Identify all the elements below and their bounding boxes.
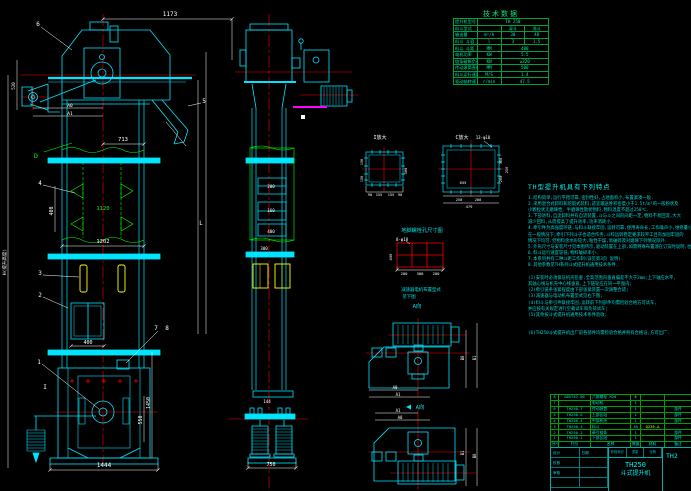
tech-unit: l [477,38,501,45]
sv-dim-300: 300 [260,246,268,251]
note-line: (6)TH250斗式提升机出厂前各部件均需检验合格并附有合格证,方可出厂. [528,331,691,337]
tech-unit: r/min [477,78,501,85]
flange-detail-I [364,150,405,187]
grid-d200a: 200 [401,271,409,276]
tech-label: 料斗运行速度 [454,71,478,78]
grid-d450: 450 [388,253,393,261]
sv-dim-750: 750 [266,462,275,468]
pv1-a1: A1 [396,392,401,397]
tech-label: 料斗型式 [454,25,478,32]
tech-value: 1.5 [525,38,549,45]
bill-of-materials: 8GB5782-86六角螺栓 M204 7电动机1 6TH250.7传动装置1部… [550,394,691,448]
fl2-d250c: 250 [505,167,509,174]
sv-dim-200: 200 [267,184,275,189]
tech-value: 3 [501,38,525,45]
sig-label: 校核 [551,458,580,468]
sv-dim-144: 144 [263,399,271,404]
grid-d200b: 200 [433,271,441,276]
weight-label: 重量 [627,448,645,457]
fl1-d90b: 90 [398,193,402,197]
pv1-a0: A0 [393,385,398,390]
bucket-side [253,264,290,288]
tech-value: 480 [501,45,549,52]
fl2-d200b: 200 [499,176,503,183]
dim-713: 713 [118,137,128,143]
dim-marker [301,115,305,119]
a-direction-arrow [406,405,411,410]
a-direction-marker-2: A向 [416,403,425,411]
fl1-d150a: 150 [360,159,364,165]
pv1-b1: B1 [472,355,477,360]
fl1-d155a: 155 [376,193,383,197]
dim-H: H(提升高度) [1,249,8,275]
dim-L: L [199,220,203,227]
detail-caption: 地脚螺栓孔尺寸图 [401,226,443,234]
a-direction-marker-1: A向 [413,302,422,310]
note-line: 5.外形尺寸与安装尺寸见本图所示,驱动装置在上部,如需特殊布置须在订货时说明,也… [528,245,691,251]
part-label-7: 7 [154,325,158,332]
sig-cell [580,458,609,468]
part-label-2: 2 [38,292,42,299]
title-block-center: 阶段标记 重量 比例 TH250 斗式提升机 [609,448,663,491]
tech-value: 浅斗 [525,25,549,32]
plan-view-top [369,323,459,388]
tech-value: 500 [501,65,549,72]
tech-value: 5.5 [501,51,549,58]
detail-I-label: I放大 [373,134,386,141]
sig-cell [551,478,580,488]
tech-unit: M/S [477,71,501,78]
sig-cell [580,468,609,478]
dim-1444: 1444 [97,462,112,469]
pv2-a1: A1 [396,408,401,413]
part-label-8: 8 [165,325,169,332]
notes-title: TH型提升机具有下列特点 [528,182,691,191]
tech-label: 传动滚筒直径 [454,65,478,72]
tech-label: 料斗 斗容 [454,38,478,45]
tech-unit: MM [477,45,501,52]
dim-550: 550 [138,415,144,424]
title-block: 设计 日期 校核 审核 阶段标记 重量 比例 TH250 斗式提升机 TH2 [550,447,691,491]
anchor-bolt-grid [397,243,443,267]
tech-value: ≥320 [501,58,549,65]
part-label-6: 6 [36,21,40,28]
note-line: (5)其余按斗式提升机通用技术条件验收; [528,313,691,319]
section-mark-I: I [43,384,47,391]
title-block-signatures: 设计 日期 校核 审核 [551,448,609,491]
dim-1173: 1173 [163,11,178,18]
grid-d300: 300 [417,271,425,276]
tech-value: 30 [501,32,525,39]
tech-unit: KN [477,58,501,65]
fl2-d655: 655 [460,180,467,185]
fl1-d300: 300 [403,167,408,175]
tech-value: TH 250 [477,19,548,26]
dim-1450: 1450 [146,397,152,409]
side-view [240,24,352,463]
pv2-a0: A0 [398,415,403,420]
dim-A1: A1 [67,111,73,117]
cad-viewport: 1173 713 400 1202 400 1444 1450 550 L H(… [0,0,691,491]
fl1-d90a: 90 [368,193,372,197]
tech-unit: KW [477,51,501,58]
fl2-d300: 300 [499,158,503,165]
title-block-strip: 阶段标记 重量 比例 [609,448,662,458]
sig-label: 审核 [551,468,580,478]
tech-label: 电机功率 [454,51,478,58]
tech-label: 驱动轴转速 [454,78,478,85]
layout-note-2: 见下图 [402,294,416,300]
drawing-title: 斗式提升机 [609,470,662,478]
dim-400-pitch: 400 [49,206,55,215]
dim-A0: A0 [67,103,73,109]
note-line: 4.牵引件为高强度环链,与料斗联接牢固,运转可靠,使用寿命长,工作噪声小,维修量… [528,226,691,232]
tech-unit: MM [477,65,501,72]
bucket-front [80,265,125,292]
drawing-model: TH250 [609,461,662,470]
tech-label: 输送量 [454,32,478,39]
part-label-5: 5 [202,98,206,105]
tech-value: 深斗 [501,25,525,32]
drawing-number: TH2 [663,448,691,491]
fl2-d479: 479 [466,204,474,209]
sv-dim-160: 160 [267,208,275,213]
detail-C-label: C放大 [455,134,468,141]
stage-label: 阶段标记 [609,448,627,457]
section-mark-D: D [34,152,38,160]
tech-label: 料斗 斗距 [454,45,478,52]
part-label-3: 3 [38,270,42,277]
fl1-d150b: 150 [360,176,364,182]
tech-label: 提升机型号 [454,19,478,26]
tech-unit: m³/h [477,32,501,39]
pv2-b0: B0 [472,453,477,458]
chute-edge [166,122,186,146]
dim-1202: 1202 [96,239,109,245]
detail-C-bolt-callout: 13-φ18 [476,135,491,140]
fl2-d250a: 250 [456,198,463,202]
tech-value: 47.5 [501,78,549,85]
motor-underline [293,107,327,119]
tech-table-title: 技术数据 [453,9,549,18]
fl2-d200a: 200 [475,198,482,202]
note-line: 8.其他参数见TH系列斗式提升机通用技术条件. [528,263,691,269]
tech-label: 链条破断负荷 [454,58,478,65]
pv2-b1: B1 [460,450,465,455]
dim-520: 520 [11,82,16,90]
layout-note-1: 减速器电机布置型式 [401,286,441,293]
fl1-d155b: 155 [388,193,395,197]
note-line: 情况下均可.但物料含水份较大,粘性干燥,易破碎及对磨琢下列情况除外. [528,239,691,245]
note-line: 在一般情况下,牵引下列斗子也适合作务,斗料运转稳定要求较平工且有加固牢固的 [528,233,691,239]
part-label-1: 1 [37,359,41,366]
tech-spec-table: 技术数据 提升机型号 TH 250 料斗型式 深斗 浅斗 输送量 m³/h 30… [453,9,549,85]
dim-400-door: 400 [83,340,92,346]
sig-label: 设计 [551,448,580,458]
tech-value: 1.4 [501,71,549,78]
pv1-b0: B0 [460,355,465,360]
tech-value: 48 [525,32,549,39]
dim-1120: 1120 [96,206,109,212]
grid-bolt-callout: 8-φ18 [396,237,409,242]
sv-dim-400: 400 [267,229,275,234]
feature-notes: TH型提升机具有下列特点 1.结构简单,运行平稳可靠,密封性好,占地面积小,布置… [528,182,691,392]
sig-cell [580,478,609,488]
sig-label: 日期 [580,448,609,458]
part-label-4: 4 [38,180,42,187]
scale-label: 比例 [644,448,662,457]
